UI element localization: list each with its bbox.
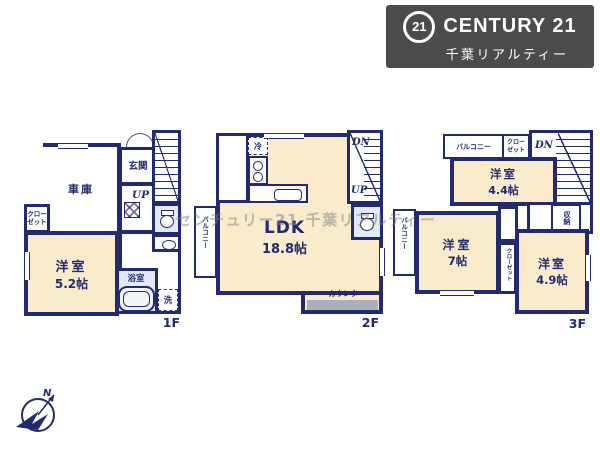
counter-surface <box>307 300 378 310</box>
dn-label: DN <box>352 137 370 150</box>
ldk-labels: LDK 18.8帖 <box>232 214 337 260</box>
bathroom-label: 浴室 <box>119 274 153 285</box>
bedroom-3f-small-labels: 洋室 4.4帖 <box>454 161 553 202</box>
century21-circle-icon: 21 <box>403 11 435 43</box>
logo-brand-name: CENTURY 21 <box>443 15 576 38</box>
storage-label: 収納 <box>563 211 570 225</box>
up-label: UP <box>132 189 149 202</box>
laundry-label: 洗 <box>164 294 173 306</box>
entrance-door-arc <box>126 133 154 147</box>
logo-row: 21 CENTURY 21 <box>403 11 576 43</box>
sink-icon <box>274 189 302 201</box>
toilet-icon <box>360 213 374 231</box>
basin-icon <box>162 240 176 250</box>
bedroom-1f-size: 5.2帖 <box>55 275 88 292</box>
entrance-label: 玄関 <box>124 161 152 173</box>
window <box>379 248 385 276</box>
bedroom-1f: 洋室 5.2帖 <box>24 231 119 316</box>
balcony-2f: バルコニー <box>194 206 217 278</box>
stairs-1f <box>152 130 181 204</box>
bedroom-3f-small-name: 洋室 <box>490 166 517 182</box>
bedroom-3f-mid-labels: 洋室 7帖 <box>419 215 496 290</box>
toilet-icon <box>160 210 174 228</box>
bedroom-3f-small: 洋室 4.4帖 <box>450 157 557 206</box>
compass-icon: N <box>10 384 68 442</box>
balcony-3f-top-label: バルコニー <box>445 143 502 152</box>
bedroom-3f-corner-name: 洋室 <box>538 255 566 272</box>
balcony-3f-left-label: バルコニー <box>400 217 407 250</box>
kitchen-side-space <box>216 133 249 203</box>
washbasin-1f <box>152 234 181 252</box>
stairs-2f: DN UP <box>347 130 383 204</box>
balcony-3f-top: バルコニー <box>443 134 504 159</box>
garage-label: 車庫 <box>61 183 101 197</box>
bedroom-3f-corner-labels: 洋室 4.9帖 <box>519 233 585 310</box>
ldk-name: LDK <box>264 218 305 238</box>
up-label: UP <box>351 185 367 198</box>
refrigerator-label: 冷 <box>254 141 262 152</box>
window <box>440 290 474 296</box>
window <box>585 255 591 281</box>
toilet-2f <box>351 204 383 240</box>
bedroom-3f-mid: 洋室 7帖 <box>415 211 500 294</box>
compass-north-label: N <box>43 388 52 399</box>
bedroom-3f-corner: 洋室 4.9帖 <box>515 229 589 314</box>
bedroom-1f-name: 洋室 <box>55 256 87 275</box>
bedroom-3f-mid-size: 7帖 <box>448 253 468 269</box>
closet-1f: クローゼット <box>24 204 50 233</box>
storage: 収納 <box>551 204 581 232</box>
stove-counter <box>248 156 268 185</box>
dn-label: DN <box>535 140 553 153</box>
closet-3f-top: クローゼット <box>502 134 530 159</box>
closet-3f-mid-label: クローゼット <box>505 248 511 281</box>
hall-1f: UP <box>119 183 155 233</box>
floor3-tag: 3F <box>556 316 586 331</box>
logo-number: 21 <box>412 19 426 34</box>
balcony-3f-left: バルコニー <box>393 209 416 276</box>
balcony-2f-label: バルコニー <box>201 216 208 249</box>
closet-1f-label: クローゼット <box>27 211 47 227</box>
century21-logo: 21 CENTURY 21 千葉リアルティー <box>386 5 594 68</box>
laundry-space: 洗 <box>158 289 178 311</box>
stair-diagonal <box>558 133 590 202</box>
floor2-tag: 2F <box>349 315 379 330</box>
bedroom-3f-corner-size: 4.9帖 <box>536 272 568 288</box>
window <box>58 143 88 149</box>
burner-icon <box>253 161 263 171</box>
step-hatch <box>124 202 140 218</box>
burner-icon <box>253 172 263 182</box>
bedroom-1f-labels: 洋室 5.2帖 <box>28 235 115 312</box>
bedroom-3f-mid-name: 洋室 <box>442 236 472 253</box>
window <box>24 252 30 280</box>
closet-3f-top-label: クローゼット <box>504 139 528 154</box>
refrigerator-space: 冷 <box>248 137 268 155</box>
floor1-tag: 1F <box>152 315 180 330</box>
logo-subtitle: 千葉リアルティー <box>445 44 568 63</box>
kitchen-sink-counter <box>248 184 308 203</box>
window <box>264 133 304 139</box>
toilet-1f <box>152 203 181 235</box>
bathtub-icon <box>118 286 155 312</box>
stair-diagonal <box>155 133 178 201</box>
bedroom-3f-small-size: 4.4帖 <box>488 182 519 198</box>
counter-label: カウンター <box>315 289 379 298</box>
garage: 車庫 <box>43 143 121 233</box>
floorplan-image: 21 CENTURY 21 千葉リアルティー 車庫 玄関 UP <box>0 0 600 450</box>
ldk-size: 18.8帖 <box>262 238 307 257</box>
